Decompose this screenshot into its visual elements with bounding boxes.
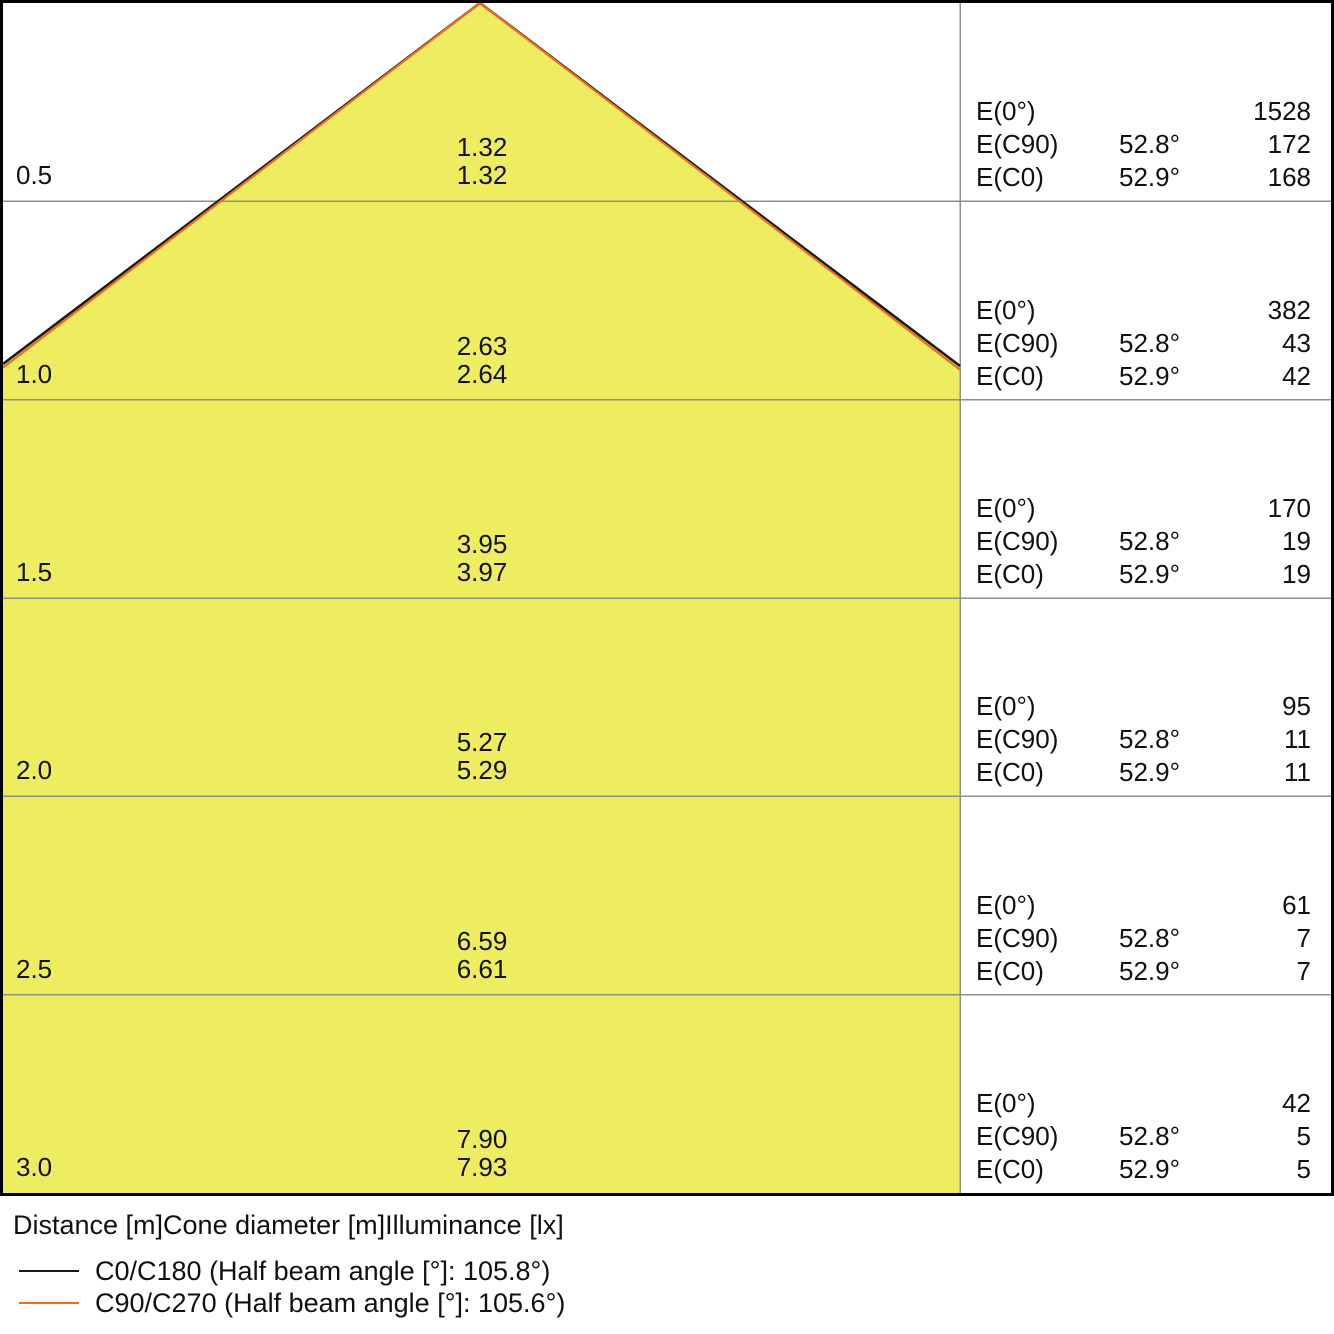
ec0-label: E(C0) — [976, 1153, 1119, 1186]
e0-label: E(0°) — [976, 492, 1119, 525]
e0-value: 95 — [1229, 690, 1311, 723]
row-1.5: 3.95 3.97 1.5 E(0°)170 E(C90)52.8°19 E(C… — [3, 400, 1331, 598]
figure-footer: Distance [m]Cone diameter [m]Illuminance… — [0, 1196, 1334, 1334]
e0-value: 61 — [1229, 889, 1311, 922]
ec90-label: E(C90) — [976, 327, 1119, 360]
ec90-value: 7 — [1229, 922, 1311, 955]
cone-diameter-pair: 5.27 5.29 — [3, 728, 961, 784]
e0-value: 42 — [1229, 1087, 1311, 1120]
ec90-label: E(C90) — [976, 525, 1119, 558]
legend-item-c90-c270: C90/C270 (Half beam angle [°]: 105.6°) — [19, 1287, 1334, 1319]
illuminance-block: E(0°)95 E(C90)52.8°11 E(C0)52.9°11 — [961, 690, 1331, 789]
ec90-angle: 52.8° — [1119, 327, 1229, 360]
cone-diameter-pair: 6.59 6.61 — [3, 927, 961, 983]
e0-label: E(0°) — [976, 690, 1119, 723]
ec90-angle: 52.8° — [1119, 922, 1229, 955]
cone-diameter-c90: 7.90 — [3, 1125, 961, 1153]
cone-diameter-pair: 7.90 7.93 — [3, 1125, 961, 1181]
ec90-label: E(C90) — [976, 128, 1119, 161]
ec90-value: 5 — [1229, 1120, 1311, 1153]
ec0-value: 19 — [1229, 558, 1311, 591]
cone-diameter-c90: 5.27 — [3, 728, 961, 756]
cone-chart-area: 1.32 1.32 0.5 E(0°)1528 E(C90)52.8°172 E… — [0, 0, 1334, 1196]
row-2.0: 5.27 5.29 2.0 E(0°)95 E(C90)52.8°11 E(C0… — [3, 598, 1331, 796]
ec0-label: E(C0) — [976, 360, 1119, 393]
ec0-angle: 52.9° — [1119, 558, 1229, 591]
distance-label: 0.5 — [16, 161, 52, 189]
ec90-angle: 52.8° — [1119, 1120, 1229, 1153]
ec0-angle: 52.9° — [1119, 161, 1229, 194]
c90-c270-line-swatch — [19, 1302, 79, 1304]
ec0-value: 168 — [1229, 161, 1311, 194]
ec90-value: 11 — [1229, 723, 1311, 756]
ec90-value: 19 — [1229, 525, 1311, 558]
axes-caption: Distance [m]Cone diameter [m]Illuminance… — [13, 1210, 1334, 1240]
cone-diameter-c90: 6.59 — [3, 927, 961, 955]
ec0-value: 42 — [1229, 360, 1311, 393]
ec0-label: E(C0) — [976, 161, 1119, 194]
ec90-label: E(C90) — [976, 922, 1119, 955]
cone-diameter-c0: 3.97 — [3, 558, 961, 586]
ec0-value: 5 — [1229, 1153, 1311, 1186]
ec90-value: 43 — [1229, 327, 1311, 360]
row-2.5: 6.59 6.61 2.5 E(0°)61 E(C90)52.8°7 E(C0)… — [3, 796, 1331, 994]
distance-label: 2.5 — [16, 955, 52, 983]
ec0-value: 7 — [1229, 955, 1311, 988]
legend-label-c90-c270: C90/C270 (Half beam angle [°]: 105.6°) — [95, 1288, 565, 1319]
ec0-angle: 52.9° — [1119, 360, 1229, 393]
distance-label: 1.0 — [16, 360, 52, 388]
ec0-label: E(C0) — [976, 558, 1119, 591]
cone-diameter-pair: 2.63 2.64 — [3, 332, 961, 388]
ec90-angle: 52.8° — [1119, 128, 1229, 161]
distance-rows: 1.32 1.32 0.5 E(0°)1528 E(C90)52.8°172 E… — [3, 3, 1331, 1193]
cone-diameter-pair: 3.95 3.97 — [3, 530, 961, 586]
e0-label: E(0°) — [976, 95, 1119, 128]
cone-diameter-c0: 7.93 — [3, 1153, 961, 1181]
ec90-label: E(C90) — [976, 723, 1119, 756]
light-cone-figure: 1.32 1.32 0.5 E(0°)1528 E(C90)52.8°172 E… — [0, 0, 1334, 1334]
ec0-angle: 52.9° — [1119, 1153, 1229, 1186]
ec90-angle: 52.8° — [1119, 525, 1229, 558]
distance-label: 3.0 — [16, 1153, 52, 1181]
c0-c180-line-swatch — [19, 1270, 79, 1272]
ec90-angle: 52.8° — [1119, 723, 1229, 756]
distance-label: 1.5 — [16, 558, 52, 586]
cone-diameter-c90: 2.63 — [3, 332, 961, 360]
row-3.0: 7.90 7.93 3.0 E(0°)42 E(C90)52.8°5 E(C0)… — [3, 995, 1331, 1193]
illuminance-block: E(0°)170 E(C90)52.8°19 E(C0)52.9°19 — [961, 492, 1331, 591]
e0-label: E(0°) — [976, 1087, 1119, 1120]
ec90-label: E(C90) — [976, 1120, 1119, 1153]
cone-diameter-c90: 3.95 — [3, 530, 961, 558]
illuminance-block: E(0°)61 E(C90)52.8°7 E(C0)52.9°7 — [961, 889, 1331, 988]
legend-label-c0-c180: C0/C180 (Half beam angle [°]: 105.8°) — [95, 1256, 550, 1287]
cone-diameter-c0: 6.61 — [3, 955, 961, 983]
e0-value: 382 — [1229, 294, 1311, 327]
ec0-angle: 52.9° — [1119, 756, 1229, 789]
ec90-value: 172 — [1229, 128, 1311, 161]
e0-label: E(0°) — [976, 294, 1119, 327]
e0-label: E(0°) — [976, 889, 1119, 922]
ec0-label: E(C0) — [976, 955, 1119, 988]
row-1.0: 2.63 2.64 1.0 E(0°)382 E(C90)52.8°43 E(C… — [3, 201, 1331, 399]
cone-diameter-c90: 1.32 — [3, 133, 961, 161]
ec0-label: E(C0) — [976, 756, 1119, 789]
ec0-angle: 52.9° — [1119, 955, 1229, 988]
illuminance-block: E(0°)382 E(C90)52.8°43 E(C0)52.9°42 — [961, 294, 1331, 393]
illuminance-block: E(0°)42 E(C90)52.8°5 E(C0)52.9°5 — [961, 1087, 1331, 1186]
e0-value: 1528 — [1229, 95, 1311, 128]
distance-label: 2.0 — [16, 756, 52, 784]
cone-diameter-c0: 1.32 — [3, 161, 961, 189]
legend: C0/C180 (Half beam angle [°]: 105.8°) C9… — [19, 1255, 1334, 1319]
cone-diameter-pair: 1.32 1.32 — [3, 133, 961, 189]
illuminance-block: E(0°)1528 E(C90)52.8°172 E(C0)52.9°168 — [961, 95, 1331, 194]
ec0-value: 11 — [1229, 756, 1311, 789]
cone-diameter-c0: 5.29 — [3, 756, 961, 784]
e0-value: 170 — [1229, 492, 1311, 525]
legend-item-c0-c180: C0/C180 (Half beam angle [°]: 105.8°) — [19, 1255, 1334, 1287]
row-0.5: 1.32 1.32 0.5 E(0°)1528 E(C90)52.8°172 E… — [3, 3, 1331, 201]
cone-diameter-c0: 2.64 — [3, 360, 961, 388]
